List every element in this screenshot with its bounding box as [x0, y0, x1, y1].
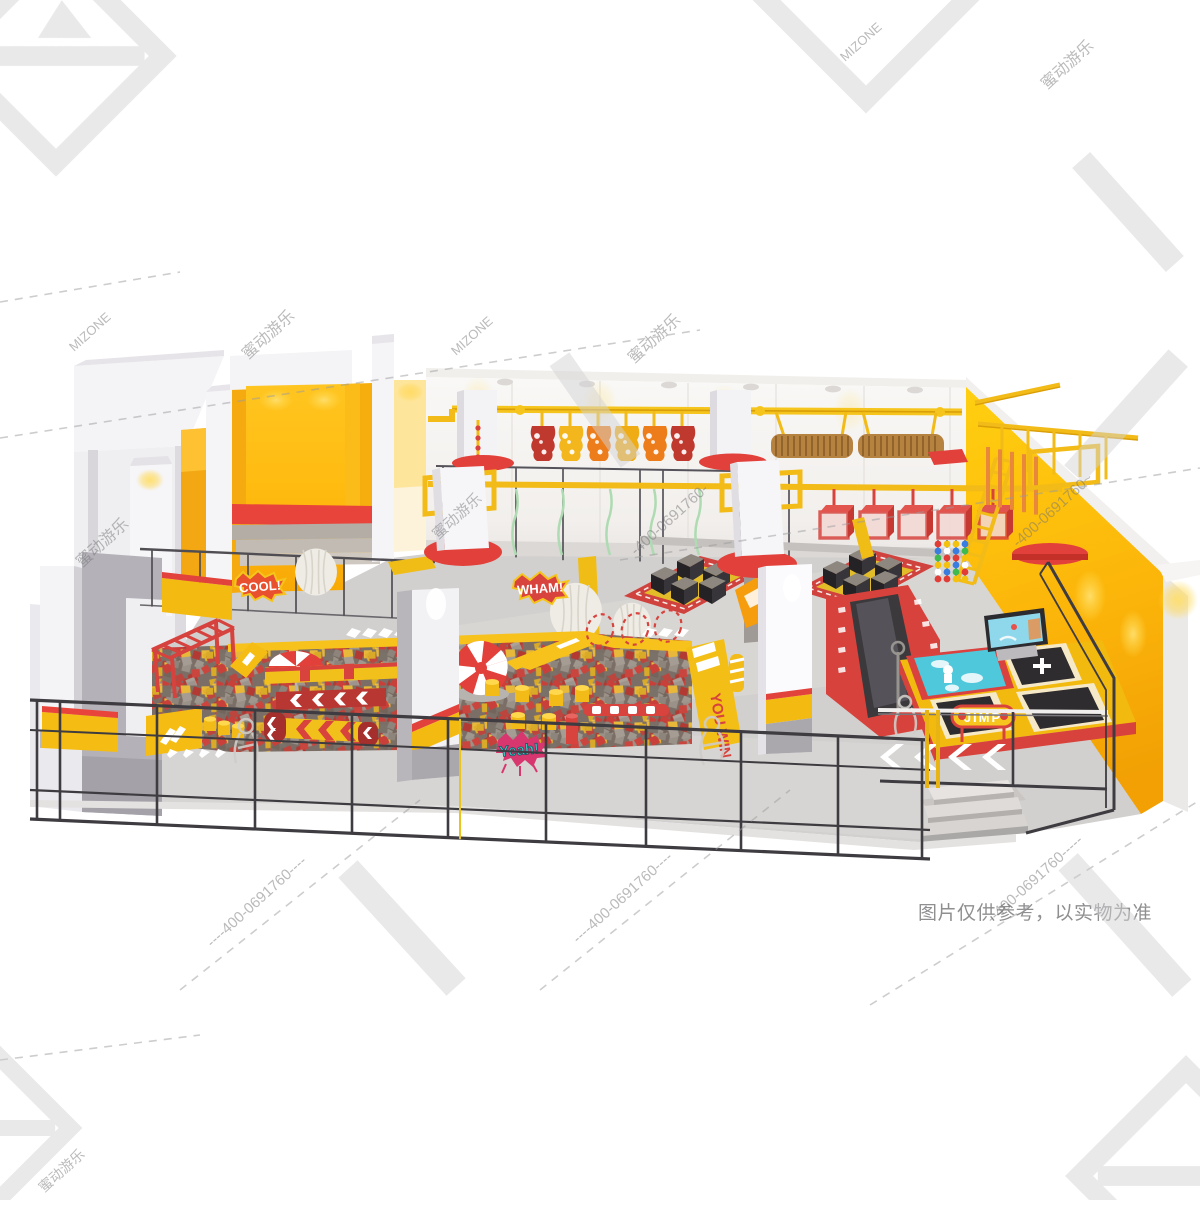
- svg-text:蜜动游乐: 蜜动游乐: [1037, 36, 1097, 93]
- svg-text:COOL!: COOL!: [239, 578, 282, 596]
- svg-text:----400-0691760----: ----400-0691760----: [203, 852, 310, 951]
- svg-text:MIZONE: MIZONE: [66, 309, 114, 354]
- svg-text:MIZONE: MIZONE: [837, 19, 885, 64]
- svg-text:MIZONE: MIZONE: [448, 313, 496, 358]
- svg-text:----400-0691760----: ----400-0691760----: [569, 848, 676, 947]
- svg-text:蜜动游乐: 蜜动游乐: [624, 310, 684, 367]
